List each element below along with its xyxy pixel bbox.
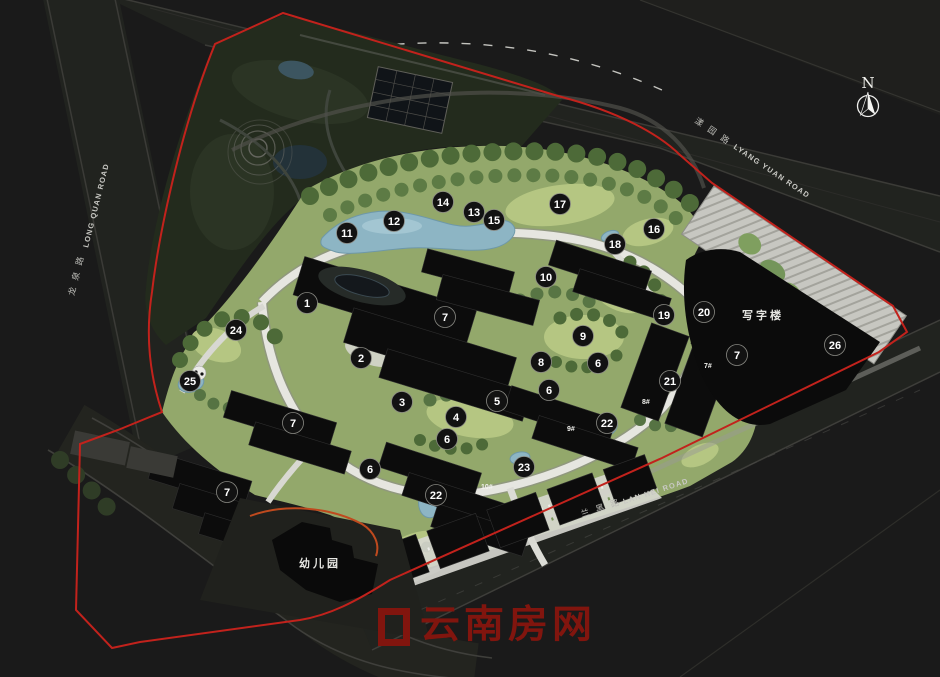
svg-text:10: 10	[540, 272, 552, 284]
site-marker-15: 15	[484, 210, 505, 231]
building-number-label: 9#	[567, 426, 575, 433]
svg-text:20: 20	[698, 307, 710, 319]
site-marker-5: 5	[487, 391, 508, 412]
svg-text:7: 7	[734, 350, 740, 362]
master-plan-canvas: 1234566667777891011121314151617181920212…	[0, 0, 940, 677]
site-marker-12: 12	[384, 211, 405, 232]
watermark: 云南房网	[378, 604, 596, 646]
svg-text:22: 22	[601, 418, 613, 430]
svg-text:11: 11	[341, 228, 353, 240]
site-marker-9: 9	[573, 326, 594, 347]
site-marker-22: 22	[597, 413, 618, 434]
site-marker-8: 8	[531, 352, 552, 373]
site-plan-image: 1234566667777891011121314151617181920212…	[0, 0, 940, 677]
svg-text:6: 6	[546, 385, 552, 397]
svg-text:7: 7	[290, 418, 296, 430]
svg-text:26: 26	[829, 340, 841, 352]
svg-text:6: 6	[444, 434, 450, 446]
site-marker-26: 26	[825, 335, 846, 356]
site-marker-7: 7	[727, 345, 748, 366]
svg-text:13: 13	[468, 207, 480, 219]
site-marker-13: 13	[464, 202, 485, 223]
svg-text:14: 14	[437, 197, 450, 209]
site-marker-18: 18	[605, 234, 626, 255]
site-marker-14: 14	[433, 192, 454, 213]
svg-text:17: 17	[554, 199, 566, 211]
site-marker-10: 10	[536, 267, 557, 288]
north-label: N	[861, 74, 874, 92]
svg-text:15: 15	[488, 215, 500, 227]
site-marker-7: 7	[217, 482, 238, 503]
svg-text:2: 2	[358, 353, 364, 365]
kindergarten-label: 幼儿园	[299, 556, 341, 570]
svg-text:22: 22	[430, 490, 442, 502]
site-marker-21: 21	[660, 371, 681, 392]
svg-text:18: 18	[609, 239, 621, 251]
site-marker-11: 11	[337, 223, 358, 244]
svg-text:7: 7	[442, 312, 448, 324]
svg-text:24: 24	[230, 325, 243, 337]
site-marker-22: 22	[426, 485, 447, 506]
svg-text:8: 8	[538, 357, 544, 369]
office-label: 写字楼	[742, 308, 784, 322]
building-number-label: 7#	[704, 363, 712, 370]
svg-text:12: 12	[388, 216, 400, 228]
site-marker-7: 7	[435, 307, 456, 328]
svg-text:1: 1	[304, 298, 310, 310]
site-marker-17: 17	[550, 194, 571, 215]
site-marker-3: 3	[392, 392, 413, 413]
svg-text:4: 4	[453, 412, 460, 424]
svg-text:7: 7	[224, 487, 230, 499]
svg-text:3: 3	[399, 397, 405, 409]
svg-text:25: 25	[184, 376, 196, 388]
building-number-label: 8#	[642, 399, 650, 406]
svg-text:6: 6	[595, 358, 601, 370]
svg-text:9: 9	[580, 331, 586, 343]
svg-text:19: 19	[658, 310, 670, 322]
svg-text:5: 5	[494, 396, 500, 408]
site-marker-2: 2	[351, 348, 372, 369]
site-marker-7: 7	[283, 413, 304, 434]
site-marker-16: 16	[644, 219, 665, 240]
svg-text:16: 16	[648, 224, 660, 236]
site-marker-24: 24	[226, 320, 247, 341]
watermark-text: 云南房网	[420, 606, 596, 644]
site-marker-6: 6	[539, 380, 560, 401]
site-marker-19: 19	[654, 305, 675, 326]
site-marker-20: 20	[694, 302, 715, 323]
building-number-label: 10#	[481, 484, 493, 491]
site-marker-23: 23	[514, 457, 535, 478]
svg-text:6: 6	[367, 464, 373, 476]
site-marker-6: 6	[360, 459, 381, 480]
svg-text:21: 21	[664, 376, 676, 388]
site-marker-1: 1	[297, 293, 318, 314]
watermark-logo-icon	[378, 608, 410, 646]
site-marker-6: 6	[437, 429, 458, 450]
site-marker-6: 6	[588, 353, 609, 374]
site-marker-25: 25	[180, 371, 201, 392]
svg-text:23: 23	[518, 462, 530, 474]
site-marker-4: 4	[446, 407, 467, 428]
